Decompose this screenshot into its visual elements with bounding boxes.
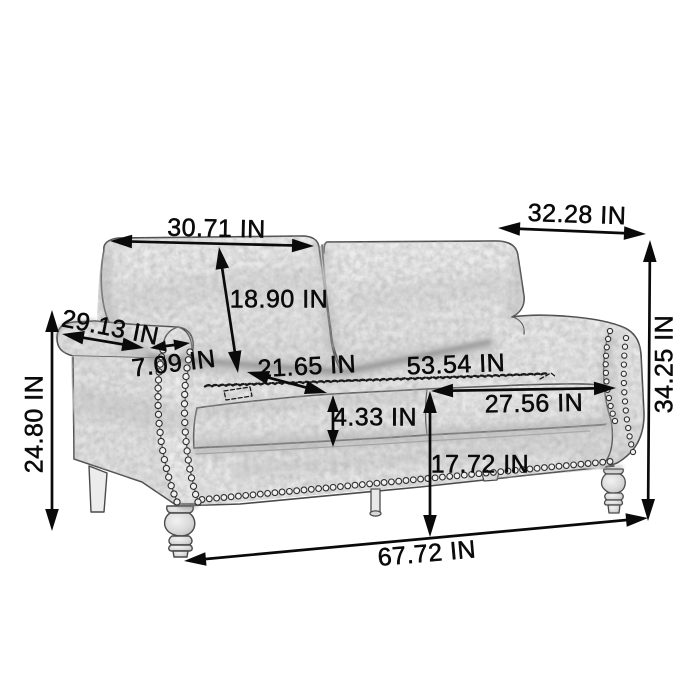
svg-text:27.56 IN: 27.56 IN <box>484 389 583 419</box>
svg-text:17.72 IN: 17.72 IN <box>431 451 530 479</box>
svg-text:32.28 IN: 32.28 IN <box>527 199 626 230</box>
svg-text:30.71 IN: 30.71 IN <box>167 214 266 244</box>
svg-text:34.25 IN: 34.25 IN <box>651 315 679 414</box>
svg-text:53.54 IN: 53.54 IN <box>406 349 505 380</box>
svg-text:24.80 IN: 24.80 IN <box>21 375 49 474</box>
svg-text:4.33 IN: 4.33 IN <box>333 404 417 432</box>
svg-text:21.65 IN: 21.65 IN <box>257 350 357 383</box>
svg-text:18.90 IN: 18.90 IN <box>230 286 329 314</box>
